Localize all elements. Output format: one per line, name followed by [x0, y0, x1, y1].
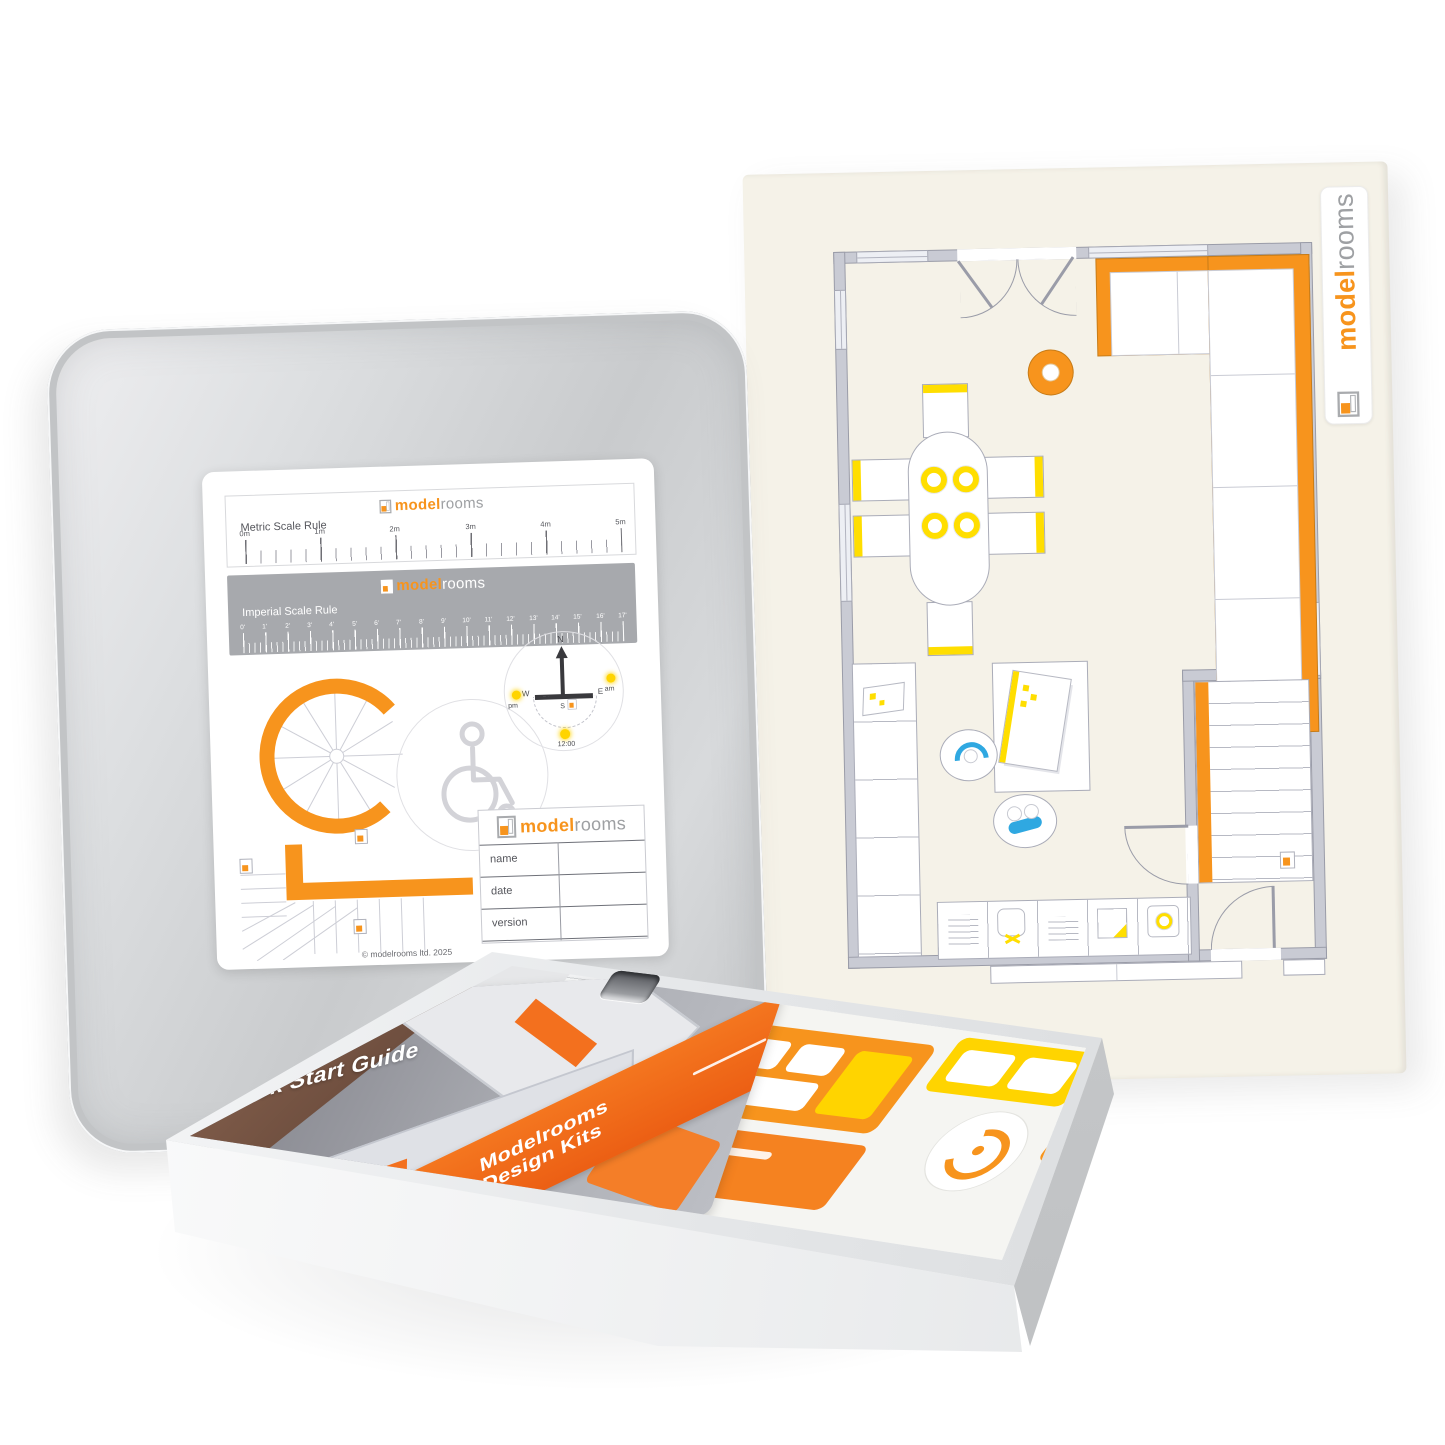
- brand-model-text: model: [395, 496, 441, 514]
- compass-north-label: N: [557, 634, 564, 644]
- lid-insert-card: Metric Scale Rule modelrooms 0m 1m 2m 3m…: [202, 458, 669, 970]
- card-brand-badge: modelrooms: [1320, 186, 1373, 425]
- imperial-tick-label: 13': [529, 615, 538, 622]
- compass-east-label: E: [598, 687, 604, 696]
- staircase: [1195, 680, 1312, 882]
- am-label: am: [605, 685, 615, 692]
- imperial-tick-label: 2': [285, 623, 290, 630]
- plan-wall-left: [834, 253, 859, 968]
- window-top-left: [857, 251, 927, 262]
- brand-rooms-text: rooms: [442, 574, 486, 592]
- window-top-right: [1089, 245, 1207, 257]
- pm-label: pm: [508, 703, 518, 710]
- imperial-tick-label: 4': [329, 621, 334, 628]
- metric-tick-label: 1m: [314, 527, 325, 536]
- modelrooms-marker-icon: [1281, 852, 1294, 867]
- dining-chair-right-2: [986, 513, 1045, 554]
- compass-west-label: W: [522, 689, 530, 698]
- window-left-lower: [839, 505, 851, 601]
- sink-icon: [940, 730, 997, 781]
- booklet-band-url-mark: [693, 1038, 767, 1076]
- punch-circle-piece: [905, 1108, 1047, 1196]
- metric-tick-label: 5m: [615, 517, 626, 526]
- noon-label: 12:00: [544, 740, 588, 748]
- metric-tick-label: 0m: [239, 529, 250, 538]
- brand-rooms-text: rooms: [1329, 193, 1361, 270]
- dining-chair-left-2: [854, 515, 913, 556]
- rear-door-arc: [1210, 886, 1276, 950]
- sun-pm-icon: [512, 690, 521, 699]
- imperial-rule-label: Imperial Scale Rule: [242, 604, 338, 619]
- metric-major-ticks: [245, 528, 623, 564]
- imperial-tick-label: 0': [240, 624, 245, 631]
- imperial-tick-label: 9': [441, 618, 446, 625]
- imperial-tick-label: 11': [484, 616, 492, 623]
- metric-tick-label: 2m: [389, 524, 400, 533]
- brand-wordmark: modelrooms: [377, 573, 486, 598]
- stairs-door-arc: [1124, 826, 1188, 886]
- imperial-tick-label: 3': [307, 622, 312, 629]
- round-table: [1028, 350, 1073, 395]
- metric-tick-label: 3m: [465, 522, 476, 531]
- imperial-tick-label: 10': [462, 617, 471, 624]
- imperial-tick-label: 5': [352, 621, 357, 628]
- threshold-step-small: [1284, 960, 1324, 975]
- dining-chair-bottom: [928, 602, 973, 655]
- imperial-tick-label: 12': [506, 616, 515, 623]
- threshold-step: [991, 962, 1241, 983]
- imperial-tick-label: 17': [618, 612, 627, 619]
- sun-am-icon: [606, 673, 615, 682]
- dining-chair-left-1: [853, 459, 912, 500]
- brand-rooms-text: rooms: [440, 494, 484, 512]
- sun-path-arc: [533, 695, 598, 729]
- brand-model-text: model: [1330, 269, 1362, 351]
- floor-plan-card: modelrooms: [743, 161, 1407, 1086]
- washing-machine-icon: [1148, 906, 1179, 937]
- imperial-tick-label: 8': [419, 618, 424, 625]
- imperial-tick-label: 15': [573, 613, 582, 620]
- title-block-row-version: version: [482, 904, 648, 942]
- drawer-lines-icon: [1048, 916, 1078, 941]
- modelrooms-logo-icon: [497, 816, 517, 839]
- product-photo-modelrooms-kit: modelrooms: [0, 0, 1445, 1445]
- brand-wordmark: modelrooms: [376, 493, 485, 518]
- dining-chair-top: [923, 384, 968, 437]
- imperial-tick-label: 16': [596, 613, 605, 620]
- cooking-pots-icon: [994, 794, 1057, 847]
- imperial-tick-label: 6': [374, 620, 379, 627]
- sofa-section-right: [1208, 255, 1318, 733]
- french-door-arc-left: [959, 259, 1018, 318]
- metric-scale-rule: Metric Scale Rule modelrooms 0m 1m 2m 3m…: [224, 483, 636, 568]
- dishwasher-icon: [1098, 909, 1127, 938]
- brand-wordmark-vertical: modelrooms: [1329, 193, 1364, 380]
- sun-noon-icon: [560, 729, 570, 739]
- modelrooms-logo-icon: [381, 580, 393, 594]
- vent-icon: [948, 914, 979, 947]
- brand-model-text: model: [396, 576, 442, 594]
- modelrooms-logo-icon: [379, 500, 391, 514]
- imperial-tick-label: 7': [396, 619, 401, 626]
- metric-tick-label: 4m: [540, 519, 551, 528]
- modelrooms-logo-icon: [1337, 391, 1359, 417]
- dining-chair-right-1: [985, 457, 1044, 498]
- imperial-tick-label: 14': [551, 614, 560, 621]
- brand-rooms-text: rooms: [574, 813, 626, 835]
- plan-wall-stairs-vertical: [1183, 671, 1196, 826]
- rear-door-leaf: [1272, 886, 1276, 948]
- window-left-upper: [835, 291, 846, 349]
- hob-icon: [998, 909, 1025, 936]
- imperial-tick-label: 1': [262, 623, 267, 630]
- title-block: modelrooms name date version: [477, 805, 648, 944]
- brand-model-text: model: [520, 814, 575, 836]
- compass-shaft: [560, 657, 565, 697]
